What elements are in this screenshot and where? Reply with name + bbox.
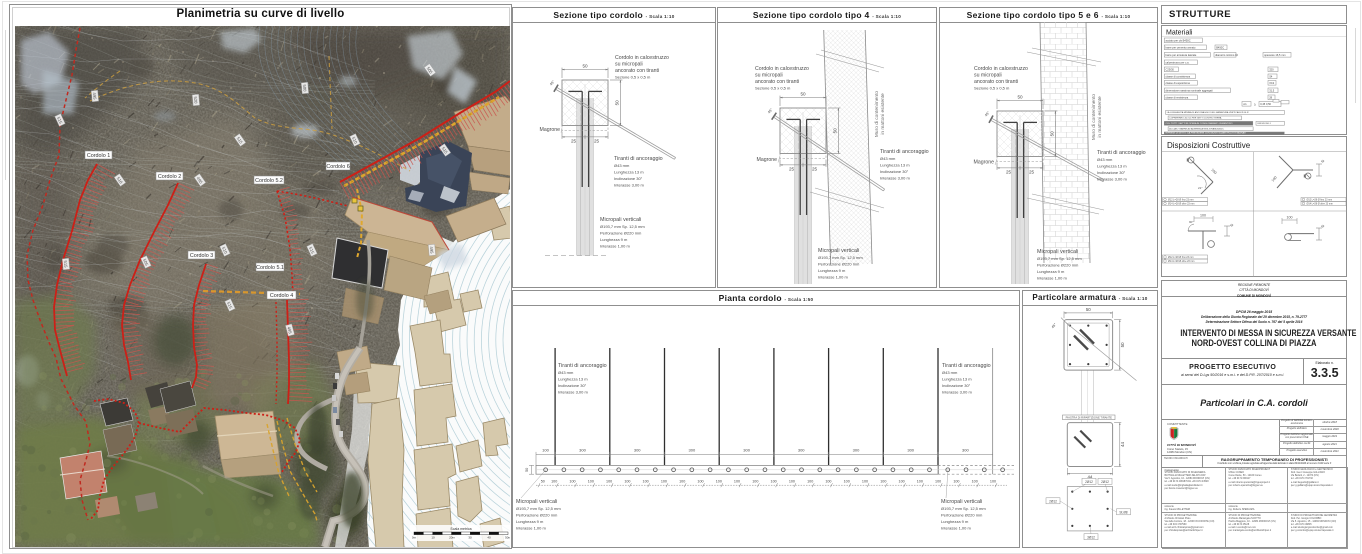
svg-text:100: 100	[624, 480, 630, 484]
svg-text:RIPRESE DI GETTO: DA PREVEDERE: RIPRESE DI GETTO: DA PREVEDERE CON GIUNT…	[1166, 132, 1247, 135]
svg-text:Ø43 mm: Ø43 mm	[614, 163, 630, 168]
svg-text:50: 50	[1050, 131, 1055, 137]
svg-text:100: 100	[716, 480, 722, 484]
svg-text:Perforazione Ø220 mm: Perforazione Ø220 mm	[818, 262, 860, 267]
svg-text:Interasse 3,00 m: Interasse 3,00 m	[880, 176, 910, 181]
svg-text:45°: 45°	[1051, 322, 1058, 329]
svg-text:Interasse 1,00 m: Interasse 1,00 m	[600, 244, 630, 249]
svg-text:Cordolo 5.1: Cordolo 5.1	[256, 265, 284, 271]
svg-text:Inclinazione 30°: Inclinazione 30°	[614, 176, 643, 181]
svg-text:PIASTRA DI RIPARTIZIONE TIRANT: PIASTRA DI RIPARTIZIONE TIRANTE	[1066, 416, 1112, 420]
svg-text:25: 25	[789, 167, 795, 172]
svg-text:100: 100	[551, 480, 557, 484]
svg-text:Ø193,7 mm Sp. 12,5 mm: Ø193,7 mm Sp. 12,5 mm	[941, 506, 986, 511]
svg-text:100: 100	[734, 480, 740, 484]
svg-text:100: 100	[789, 480, 795, 484]
svg-text:XC2: XC2	[1269, 81, 1275, 85]
svg-text:Interasse 3,00 m: Interasse 3,00 m	[1097, 177, 1127, 182]
svg-text:Materiali: Materiali	[1166, 30, 1193, 37]
svg-text:Tiranti di ancoraggio: Tiranti di ancoraggio	[880, 149, 929, 155]
svg-text:B450C: B450C	[1216, 45, 1224, 49]
svg-text:dimensione massima nominale ag: dimensione massima nominale aggregati	[1166, 88, 1214, 92]
svg-text:in mattoni esistente: in mattoni esistente	[1097, 96, 1103, 138]
svg-text:Ø193,7 mm Sp. 12,5 mm: Ø193,7 mm Sp. 12,5 mm	[818, 255, 863, 260]
svg-text:100: 100	[771, 480, 777, 484]
svg-text:25: 25	[1029, 170, 1035, 175]
svg-text:495: 495	[429, 246, 435, 254]
svg-text:2Ø12: 2Ø12	[1049, 499, 1057, 503]
svg-text:Micropali verticali: Micropali verticali	[600, 217, 641, 223]
svg-text:25: 25	[812, 167, 818, 172]
svg-text:Cordolo 1: Cordolo 1	[87, 153, 110, 159]
svg-text:Ø14 L=28 Ø oltre 23 mm: Ø14 L=28 Ø oltre 23 mm	[1168, 260, 1194, 263]
svg-text:St.Ø8: St.Ø8	[1119, 510, 1127, 514]
svg-text:300: 300	[798, 447, 805, 452]
svg-text:Ø14 L=28 Ø oltre 23 mm: Ø14 L=28 Ø oltre 23 mm	[1307, 203, 1333, 206]
svg-text:100: 100	[825, 480, 831, 484]
svg-text:COPRIFERRO 40 mm PER GETTI CON: COPRIFERRO 40 mm PER GETTI CONTRO TERRA	[1169, 117, 1222, 120]
svg-text:300: 300	[907, 447, 914, 452]
svg-text:Cordolo 4: Cordolo 4	[270, 293, 293, 299]
svg-text:Lunghezza 13 m: Lunghezza 13 m	[614, 170, 644, 175]
svg-text:Micropali verticali: Micropali verticali	[516, 499, 557, 505]
svg-text:classe di esposizione: classe di esposizione	[1166, 81, 1191, 85]
svg-text:barre per cemento armato: barre per cemento armato	[1166, 45, 1197, 49]
svg-text:spessore 16,5 mm: spessore 16,5 mm	[1264, 53, 1285, 57]
svg-text:50: 50	[541, 480, 545, 484]
svg-text:500: 500	[302, 84, 308, 92]
svg-text:Lunghezza 9 m: Lunghezza 9 m	[1037, 269, 1065, 274]
svg-text:300: 300	[962, 447, 969, 452]
svg-text:Ø193,7 mm Sp. 12,5 mm: Ø193,7 mm Sp. 12,5 mm	[600, 224, 645, 229]
svg-text:300: 300	[853, 447, 860, 452]
svg-text:50: 50	[1017, 94, 1023, 99]
svg-text:Sezione 0,5 x 0,5 m: Sezione 0,5 x 0,5 m	[974, 86, 1010, 91]
svg-text:300: 300	[634, 447, 641, 452]
svg-text:Magrone: Magrone	[540, 127, 561, 133]
svg-text:Cordolo 3: Cordolo 3	[190, 253, 213, 259]
svg-text:520: 520	[193, 96, 199, 104]
svg-text:50m: 50m	[505, 536, 510, 540]
svg-text:S4: S4	[1269, 74, 1273, 78]
svg-text:Interasse 3,00 m: Interasse 3,00 m	[942, 390, 972, 395]
svg-text:Inclinazione 30°: Inclinazione 30°	[942, 383, 971, 388]
svg-text:Ø14 L=28 Ø oltre 23 mm: Ø14 L=28 Ø oltre 23 mm	[1168, 203, 1194, 206]
svg-text:Lunghezza 13 m: Lunghezza 13 m	[942, 377, 972, 382]
svg-text:100: 100	[643, 480, 649, 484]
svg-text:100: 100	[752, 480, 758, 484]
svg-text:100: 100	[899, 480, 905, 484]
svg-text:C25/30: C25/30	[1166, 67, 1175, 71]
svg-text:Disposizioni Costruttive: Disposizioni Costruttive	[1167, 141, 1251, 150]
svg-text:Perforazione Ø220 mm: Perforazione Ø220 mm	[600, 231, 642, 236]
svg-text:Interasse 1,00 m: Interasse 1,00 m	[941, 526, 971, 531]
svg-text:45°: 45°	[549, 79, 556, 86]
svg-text:Cordolo in calcestruzzo: Cordolo in calcestruzzo	[974, 66, 1028, 72]
svg-text:Ø: Ø	[1229, 223, 1234, 228]
svg-text:acciaio per cls B450C: acciaio per cls B450C	[1166, 38, 1191, 42]
svg-text:ACCIAIO: BARRE AD ADERENZA MIG: ACCIAIO: BARRE AD ADERENZA MIGLIORATA B4…	[1169, 127, 1224, 130]
svg-text:Ø12 L=28 Ø fino 23 mm: Ø12 L=28 Ø fino 23 mm	[1307, 199, 1333, 202]
svg-text:Cordolo 5.2: Cordolo 5.2	[255, 178, 283, 184]
svg-text:100: 100	[953, 480, 959, 484]
svg-text:Sezione 0,5 x 0,5 m: Sezione 0,5 x 0,5 m	[615, 75, 651, 80]
svg-text:100: 100	[661, 480, 667, 484]
svg-text:100: 100	[1271, 176, 1278, 183]
svg-text:diametro minimo 10: diametro minimo 10	[1215, 53, 1238, 57]
svg-text:Ø43 mm: Ø43 mm	[880, 156, 896, 161]
svg-text:100: 100	[880, 480, 886, 484]
svg-text:Muro di contenimento: Muro di contenimento	[1091, 94, 1097, 140]
svg-text:50: 50	[1120, 342, 1125, 347]
svg-text:Micropali verticali: Micropali verticali	[1037, 249, 1078, 255]
svg-text:≥: ≥	[1254, 103, 1256, 107]
svg-text:25: 25	[571, 139, 577, 144]
svg-text:Muro di contenimento: Muro di contenimento	[874, 91, 880, 137]
svg-text:LA LUNGHEZZA MINIMA DI ANCORAG: LA LUNGHEZZA MINIMA DI ANCORAGGIO DELL’A…	[1167, 111, 1249, 114]
svg-text:Perforazione Ø220 mm: Perforazione Ø220 mm	[516, 513, 558, 518]
svg-text:40: 40	[487, 536, 491, 540]
svg-text:Ø12 L=28 Ø fino 23 mm: Ø12 L=28 Ø fino 23 mm	[1168, 199, 1194, 202]
svg-text:100: 100	[697, 480, 703, 484]
svg-text:45°: 45°	[767, 107, 774, 114]
svg-text:21°: 21°	[1198, 186, 1203, 190]
svg-text:25: 25	[1006, 170, 1012, 175]
svg-text:50: 50	[582, 63, 588, 68]
svg-text:0m: 0m	[412, 536, 417, 540]
svg-text:Lunghezza 9 m: Lunghezza 9 m	[818, 268, 846, 273]
svg-text:ancorato con tiranti: ancorato con tiranti	[615, 68, 659, 74]
svg-text:Interasse 3,00 m: Interasse 3,00 m	[614, 183, 644, 188]
svg-text:Tiranti di ancoraggio: Tiranti di ancoraggio	[558, 363, 607, 369]
svg-text:45°: 45°	[984, 110, 991, 117]
svg-text:Ø43 mm: Ø43 mm	[1097, 157, 1113, 162]
svg-text:320: 320	[1269, 67, 1274, 71]
svg-text:Ø43 mm: Ø43 mm	[558, 370, 574, 375]
svg-text:Scala metrica: Scala metrica	[450, 527, 471, 531]
svg-text:classe di resistenza: classe di resistenza	[1166, 95, 1189, 99]
svg-text:300: 300	[579, 447, 586, 452]
svg-text:20m: 20m	[449, 536, 455, 540]
svg-text:Lunghezza 13 m: Lunghezza 13 m	[880, 163, 910, 168]
svg-text:ancorato con tiranti: ancorato con tiranti	[755, 79, 799, 85]
svg-text:2Ø12: 2Ø12	[1101, 480, 1109, 484]
svg-text:su micropali: su micropali	[615, 62, 643, 68]
svg-text:ancorato con tiranti: ancorato con tiranti	[974, 79, 1018, 85]
svg-text:100: 100	[588, 480, 594, 484]
svg-text:Cordolo 6: Cordolo 6	[326, 164, 349, 170]
svg-text:Interasse 1,00 m: Interasse 1,00 m	[1037, 276, 1067, 281]
svg-text:100: 100	[862, 480, 868, 484]
svg-text:Inclinazione 30°: Inclinazione 30°	[880, 169, 909, 174]
svg-text:3Ø12: 3Ø12	[1087, 535, 1095, 539]
svg-text:50: 50	[525, 468, 529, 472]
svg-text:100: 100	[569, 480, 575, 484]
svg-text:Inclinazione 30°: Inclinazione 30°	[1097, 170, 1126, 175]
svg-text:Ø193,7 mm Sp. 12,5 mm: Ø193,7 mm Sp. 12,5 mm	[1037, 256, 1082, 261]
svg-text:100: 100	[679, 480, 685, 484]
svg-text:Tiranti di ancoraggio: Tiranti di ancoraggio	[942, 363, 991, 369]
svg-text:100: 100	[990, 480, 996, 484]
svg-text:Lunghezza 13 m: Lunghezza 13 m	[558, 377, 588, 382]
svg-text:Micropali verticali: Micropali verticali	[818, 248, 859, 254]
svg-text:100: 100	[917, 480, 923, 484]
svg-text:Interasse 3,00 m: Interasse 3,00 m	[558, 390, 588, 395]
svg-text:Lunghezza 9 m: Lunghezza 9 m	[600, 237, 628, 242]
svg-text:Tiranti di ancoraggio: Tiranti di ancoraggio	[1097, 150, 1146, 156]
svg-text:Inclinazione 30°: Inclinazione 30°	[558, 383, 587, 388]
svg-text:Interasse 1,00 m: Interasse 1,00 m	[516, 526, 546, 531]
svg-text:50: 50	[833, 128, 838, 134]
svg-text:Interasse 1,00 m: Interasse 1,00 m	[818, 275, 848, 280]
svg-text:classe di consistenza: classe di consistenza	[1166, 74, 1191, 78]
svg-text:50: 50	[1086, 307, 1091, 312]
svg-text:Cordolo 2: Cordolo 2	[158, 174, 181, 180]
svg-text:in mattoni esistente: in mattoni esistente	[880, 93, 886, 135]
svg-text:25: 25	[594, 139, 600, 144]
svg-text:10: 10	[431, 536, 435, 540]
svg-text:su micropali: su micropali	[755, 73, 783, 79]
svg-text:barre per armatura laterale: barre per armatura laterale	[1166, 53, 1197, 57]
svg-text:0,45 0,50: 0,45 0,50	[1260, 102, 1271, 106]
svg-text:100: 100	[844, 480, 850, 484]
svg-text:CLS: TUTTI I GETTI IN OPERA IN: CLS: TUTTI I GETTI IN OPERA IN CONGLOMER…	[1166, 122, 1233, 125]
svg-text:100: 100	[807, 480, 813, 484]
svg-text:Cordolo in calcestruzzo: Cordolo in calcestruzzo	[615, 55, 669, 61]
svg-text:2Ø12: 2Ø12	[1085, 480, 1093, 484]
svg-text:Lunghezza 9 m: Lunghezza 9 m	[516, 519, 544, 524]
svg-text:Tiranti di ancoraggio: Tiranti di ancoraggio	[614, 156, 663, 162]
svg-text:Lunghezza 9 m: Lunghezza 9 m	[941, 519, 969, 524]
svg-text:Magrone: Magrone	[974, 160, 995, 166]
svg-text:50: 50	[615, 100, 620, 106]
svg-text:Micropali verticali: Micropali verticali	[941, 499, 982, 505]
svg-text:Ø193,7 mm Sp. 12,5 mm: Ø193,7 mm Sp. 12,5 mm	[516, 506, 561, 511]
svg-text:Magrone: Magrone	[757, 157, 778, 163]
svg-text:100: 100	[972, 480, 978, 484]
svg-text:300: 300	[743, 447, 750, 452]
svg-text:30: 30	[468, 536, 472, 540]
svg-text:Ø43 mm: Ø43 mm	[942, 370, 958, 375]
svg-text:515: 515	[63, 260, 69, 268]
svg-text:Sezione 0,5 x 0,5 m: Sezione 0,5 x 0,5 m	[755, 86, 791, 91]
svg-text:100: 100	[542, 447, 549, 452]
svg-text:31,5: 31,5	[1269, 88, 1275, 92]
svg-text:50: 50	[800, 91, 806, 96]
svg-text:100: 100	[606, 480, 612, 484]
svg-text:Ø: Ø	[1320, 159, 1325, 164]
svg-text:300: 300	[689, 447, 696, 452]
svg-text:calcestruzzo per c.a.: calcestruzzo per c.a.	[1166, 60, 1190, 64]
svg-text:44: 44	[1120, 442, 1125, 447]
svg-text:Ø12 L=28 Ø fino 23 mm: Ø12 L=28 Ø fino 23 mm	[1168, 256, 1194, 259]
svg-text:Cordolo in calcestruzzo: Cordolo in calcestruzzo	[755, 66, 809, 72]
svg-text:100: 100	[1200, 214, 1206, 218]
svg-text:495: 495	[92, 92, 98, 100]
svg-text:90°: 90°	[1189, 220, 1194, 224]
svg-text:Perforazione Ø220 mm: Perforazione Ø220 mm	[1037, 263, 1079, 268]
svg-text:100: 100	[1287, 216, 1293, 220]
svg-text:su micropali: su micropali	[974, 73, 1002, 79]
svg-text:Perforazione Ø220 mm: Perforazione Ø220 mm	[941, 513, 983, 518]
svg-text:Lunghezza 13 m: Lunghezza 13 m	[1097, 164, 1127, 169]
svg-text:100: 100	[1210, 168, 1217, 175]
svg-text:100: 100	[935, 480, 941, 484]
svg-text:UNI EN 206-1: UNI EN 206-1	[1257, 123, 1271, 125]
